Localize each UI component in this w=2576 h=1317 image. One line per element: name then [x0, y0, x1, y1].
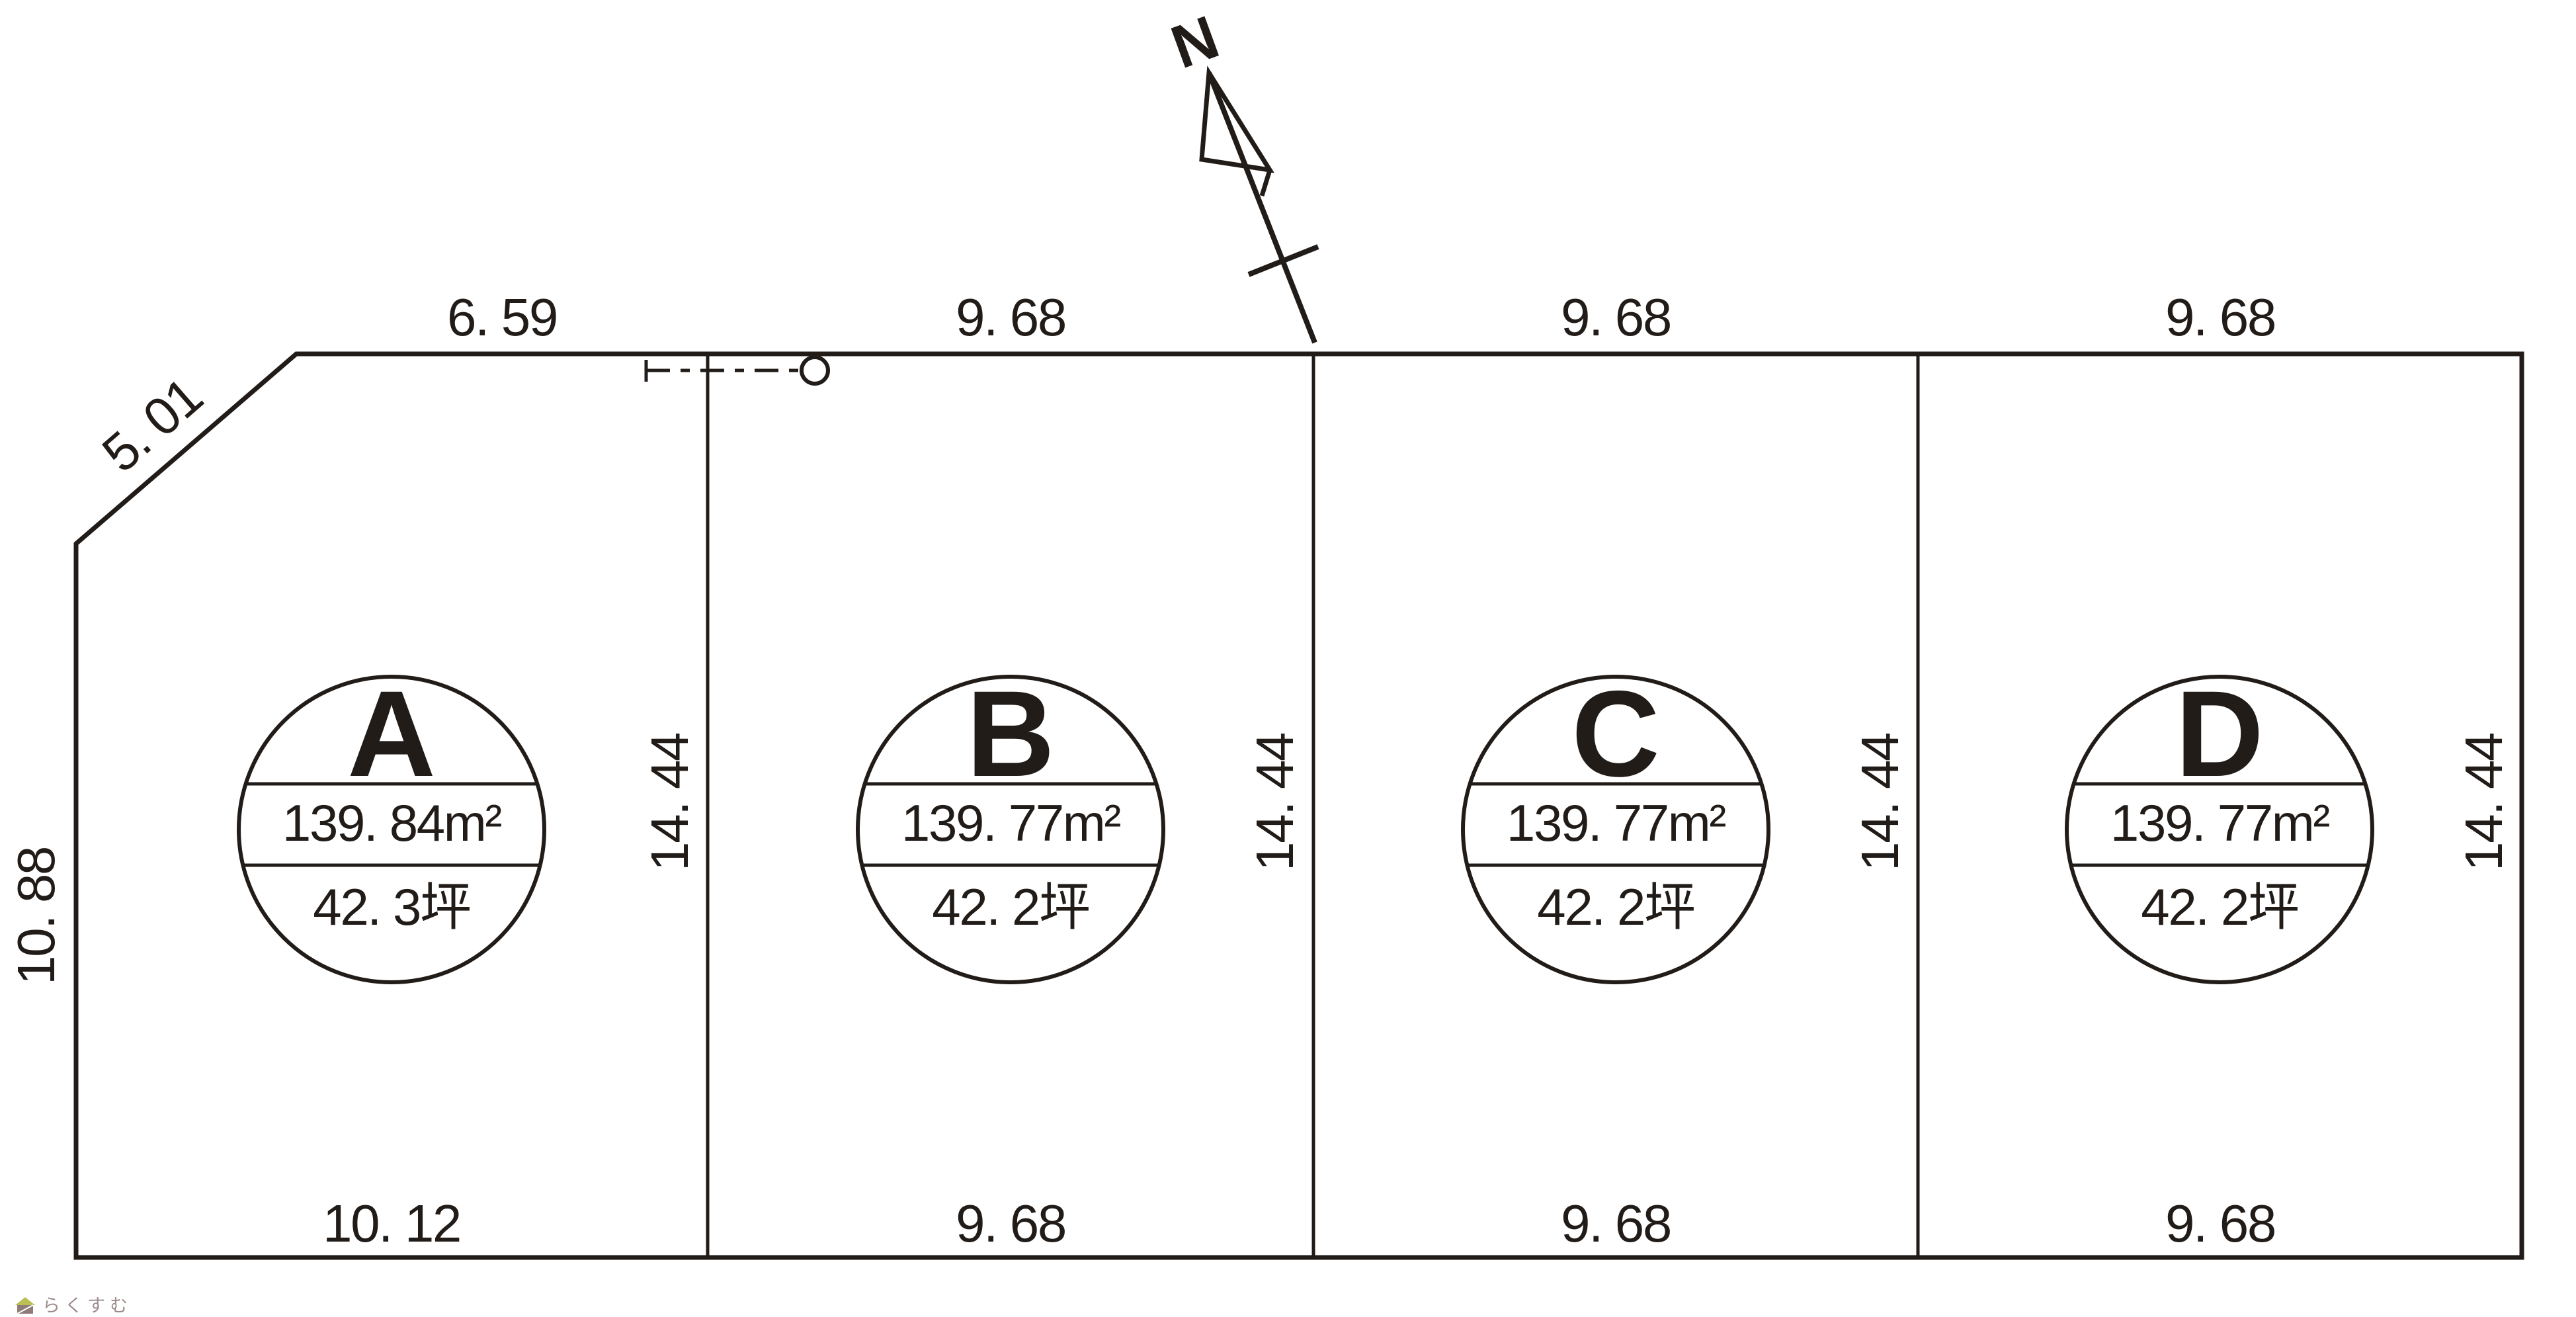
land-plot-diagram: N 6. 59 9. 68 9. 68 9. 68 10. 12 9. 68 9… [0, 0, 2576, 1317]
dim-top-lot-c: 9. 68 [1561, 291, 1671, 344]
dim-top-lot-a: 6. 59 [447, 291, 557, 344]
dim-left-side: 10. 88 [10, 847, 63, 985]
dim-depth-lot-d: 14. 44 [2458, 734, 2511, 871]
lot-b-letter: B [966, 673, 1055, 796]
dim-depth-lot-c: 14. 44 [1854, 734, 1907, 871]
dim-top-lot-b: 9. 68 [956, 291, 1065, 344]
watermark-house-icon [13, 1296, 37, 1316]
lot-b-area-sqm: 139. 77m² [901, 797, 1120, 849]
lot-c-area-sqm: 139. 77m² [1507, 797, 1725, 849]
dim-bottom-lot-d: 9. 68 [2165, 1197, 2275, 1250]
dim-top-lot-d: 9. 68 [2165, 291, 2275, 344]
watermark-text: らくすむ [42, 1297, 132, 1315]
lot-c-letter: C [1571, 673, 1660, 796]
lot-a-area-sqm: 139. 84m² [282, 797, 501, 849]
north-arrow-icon [1202, 73, 1318, 343]
lot-c-area-tsubo: 42. 2坪 [1537, 881, 1694, 933]
utility-circle-marker [802, 357, 828, 384]
lot-d-area-tsubo: 42. 2坪 [2141, 881, 2298, 933]
lot-d-letter: D [2175, 673, 2264, 796]
lot-a-letter: A [347, 673, 436, 796]
dim-bottom-lot-a: 10. 12 [323, 1197, 460, 1250]
lot-b-area-tsubo: 42. 2坪 [932, 881, 1089, 933]
plan-linework [0, 0, 2576, 1317]
dim-depth-lot-a: 14. 44 [644, 734, 696, 871]
lot-d-area-sqm: 139. 77m² [2110, 797, 2329, 849]
lot-a-area-tsubo: 42. 3坪 [313, 881, 470, 933]
dim-depth-lot-b: 14. 44 [1249, 734, 1302, 871]
dim-bottom-lot-c: 9. 68 [1561, 1197, 1671, 1250]
dim-bottom-lot-b: 9. 68 [956, 1197, 1065, 1250]
